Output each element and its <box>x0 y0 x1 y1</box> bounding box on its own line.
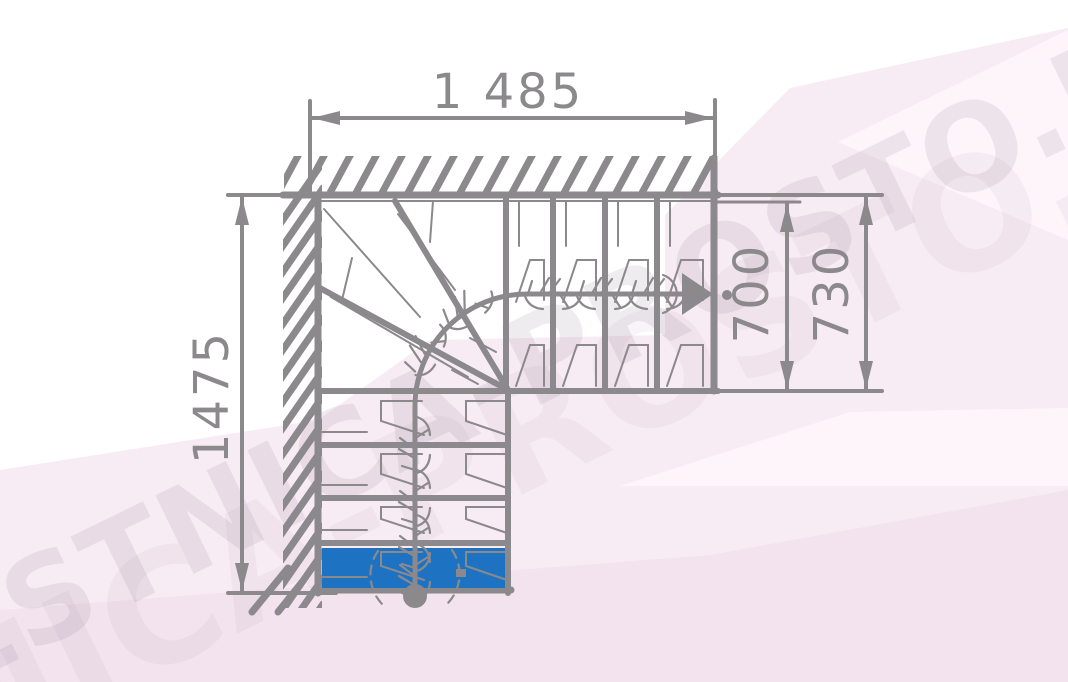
winder-risers <box>318 201 508 390</box>
stair-plan-drawing <box>0 0 1068 682</box>
stair-plan-page: LESTNICA-PROSTO.RU LESTNICA-PROSTO.RU <box>0 0 1068 682</box>
step-risers <box>318 198 718 593</box>
walk-line-end-dot <box>722 290 732 300</box>
wall-hatching-stubs <box>252 568 302 612</box>
walk-line-arrowhead <box>682 273 713 315</box>
